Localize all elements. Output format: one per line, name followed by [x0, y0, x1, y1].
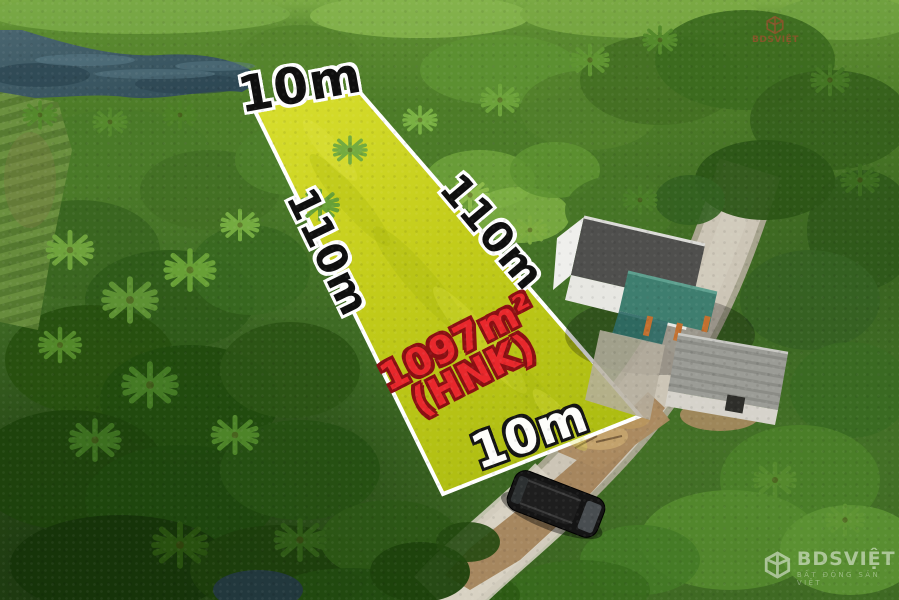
aerial-photo: 10m 110m 110m 1097m² (HNK) 10m BDSVIỆT B… — [0, 0, 899, 600]
outbuilding-door — [725, 395, 746, 414]
photo-paint-layer — [0, 0, 899, 600]
pond — [0, 30, 263, 98]
tree-over-road — [655, 175, 725, 225]
roadside-bush — [436, 522, 500, 562]
